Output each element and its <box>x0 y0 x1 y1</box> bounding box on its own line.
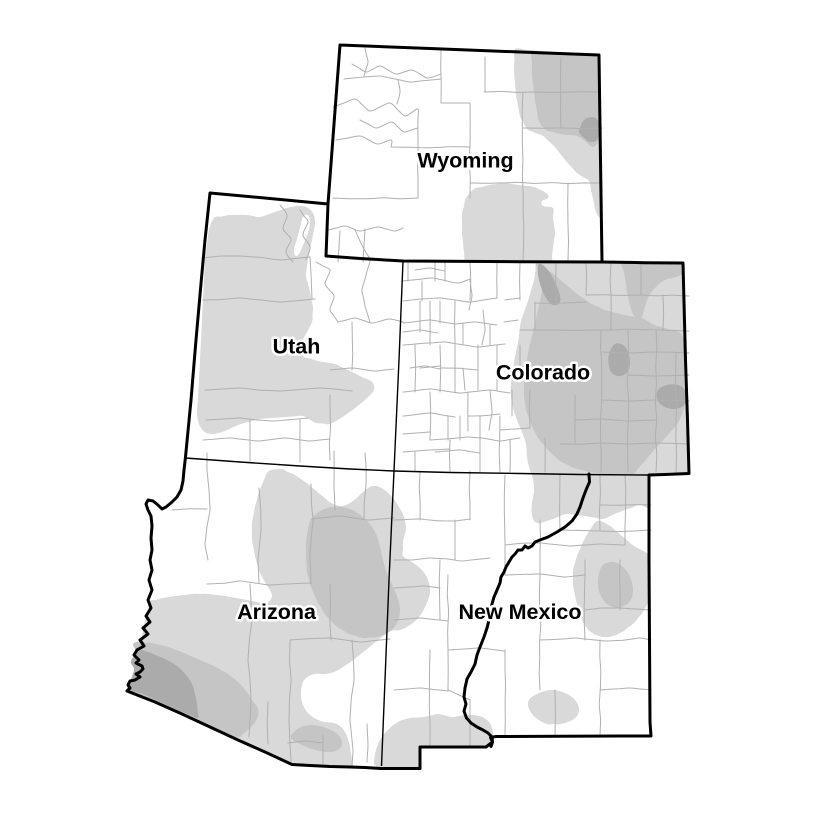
svg-text:Arizona: Arizona <box>237 600 317 624</box>
svg-text:Colorado: Colorado <box>496 361 590 385</box>
svg-text:New Mexico: New Mexico <box>458 600 581 624</box>
svg-text:Utah: Utah <box>273 335 321 359</box>
svg-text:Wyoming: Wyoming <box>417 149 513 173</box>
